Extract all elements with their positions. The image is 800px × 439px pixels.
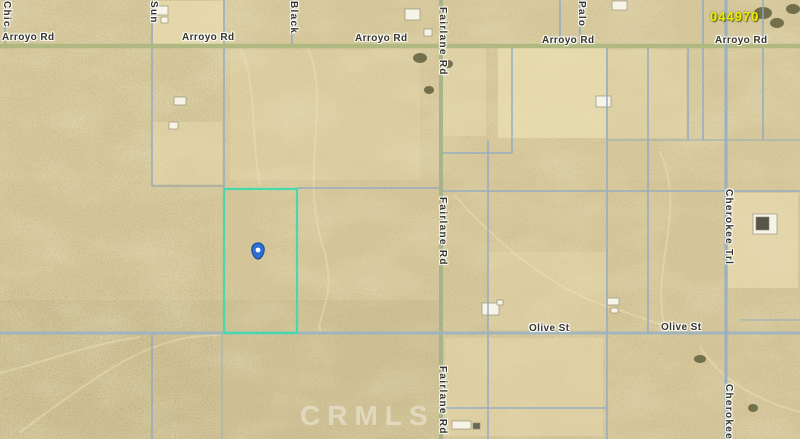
- road-label-sun: Sun: [148, 1, 158, 24]
- road-label-arroyo-2: Arroyo Rd: [182, 33, 235, 43]
- road-label-cherokee-1: Cherokee Trl: [723, 189, 733, 265]
- road-label-arroyo-4: Arroyo Rd: [542, 36, 595, 46]
- satellite-imagery: [0, 0, 800, 439]
- map-canvas[interactable]: Arroyo Rd Arroyo Rd Arroyo Rd Arroyo Rd …: [0, 0, 800, 439]
- road-label-arroyo-5: Arroyo Rd: [715, 36, 768, 46]
- road-label-black: Black: [288, 1, 298, 34]
- road-label-fairlane-1: Fairlane Rd: [437, 7, 447, 76]
- road-label-palo: Palo: [576, 1, 586, 27]
- road-label-olive-2: Olive St: [661, 323, 701, 333]
- road-label-arroyo-1: Arroyo Rd: [2, 33, 55, 43]
- road-label-cherokee-2: Cherokee Trl: [723, 384, 733, 439]
- crmls-watermark: CRMLS: [300, 402, 435, 430]
- location-pin-icon[interactable]: [252, 243, 264, 259]
- road-label-fairlane-2: Fairlane Rd: [437, 197, 447, 266]
- road-label-olive-1: Olive St: [529, 324, 569, 334]
- road-label-fairlane-3: Fairlane Rd: [437, 366, 447, 435]
- parcel-number-overlay: 044970: [710, 10, 759, 23]
- road-label-chic: Chic: [1, 1, 11, 28]
- road-label-arroyo-3: Arroyo Rd: [355, 34, 408, 44]
